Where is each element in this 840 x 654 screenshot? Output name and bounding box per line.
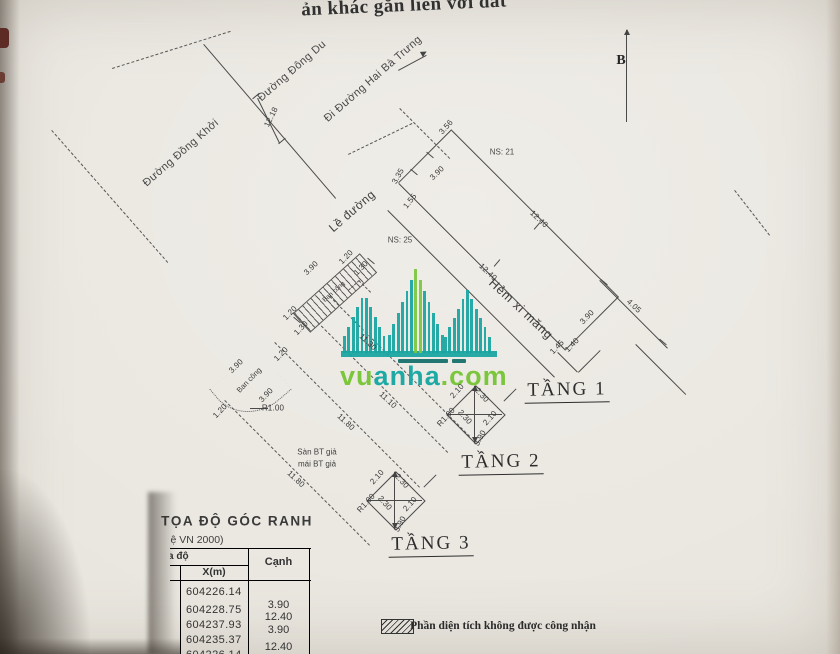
watermark-letter: u (356, 361, 374, 391)
table-canh-value: 3.90 (248, 624, 309, 636)
scan-mark (0, 28, 9, 48)
drawing-line (599, 280, 668, 349)
dim-balcony-1-20-a: 1.20 (272, 345, 290, 363)
dimension-tick (494, 259, 501, 267)
dim-3-56: 3.56 (437, 118, 455, 136)
watermark-letter: n (390, 361, 408, 391)
street-label-hai-ba-trung: Đi Đường Hai Bà Trưng (322, 33, 424, 124)
floor-label-2: TẦNG 2 (458, 450, 543, 475)
watermark-skyline-bar (466, 290, 469, 353)
legend-hatch-swatch (381, 619, 414, 634)
watermark-skyline-bar (475, 309, 478, 353)
drawing-line (635, 344, 686, 395)
dim-roof-3-90: 3.90 (302, 259, 320, 277)
table-canh-value: 12.40 (248, 611, 309, 623)
watermark-skyline-bar (388, 335, 391, 353)
house-code-21: NS: 21 (490, 148, 514, 157)
table-border (170, 580, 311, 581)
dim-rear-3-90: 3.90 (578, 308, 596, 326)
table-header-toado: a độ (170, 551, 189, 562)
arrow-head (420, 49, 428, 57)
north-label: B (616, 53, 625, 69)
watermark-text: vuanha.com (340, 361, 508, 392)
watermark-letter: . (441, 361, 450, 391)
watermark-skyline-bar (378, 327, 381, 353)
dim-front-3-90: 3.90 (428, 164, 446, 182)
floor-label-1: TẦNG 1 (524, 378, 609, 403)
street-label-dong-du: Đường Đông Du (255, 38, 328, 104)
watermark-skyline-bar (406, 291, 409, 353)
table-title: TỌA ĐỘ GÓC RANH (161, 514, 313, 529)
watermark-letter: h (407, 361, 425, 391)
watermark-skyline-bar (488, 337, 491, 353)
watermark-skyline-bar (356, 307, 359, 353)
floor-label-3: TẦNG 3 (388, 532, 473, 557)
alley-label: Hẻm xi măng (486, 276, 556, 342)
watermark-skyline-bar (423, 291, 426, 353)
watermark-skyline-bar (419, 280, 422, 353)
dimension-tick (278, 138, 286, 145)
scanned-survey-drawing: vuanha.com a độ X(m) Cạnh 604226.1460422… (0, 0, 840, 654)
dim-4-05: 4.05 (625, 297, 643, 315)
table-canh-value: 3.90 (248, 599, 309, 611)
table-border (180, 565, 181, 654)
note-san-bt-gia: Sàn BT giả (297, 448, 336, 457)
table-subtitle: ệ VN 2000) (170, 534, 223, 546)
watermark-skyline-bar (462, 299, 465, 353)
street-label-dong-khoi: Đường Đồng Khởi (141, 117, 222, 189)
dim-1-40: 1.40 (563, 336, 581, 354)
drawing-line (557, 352, 578, 373)
drawing-line (112, 31, 230, 69)
scan-shadow-right (826, 0, 840, 654)
watermark-skyline-bar (457, 309, 460, 353)
dim-balcony-r1-00: R1.00 (262, 404, 284, 413)
watermark-skyline-bar (428, 302, 431, 353)
watermark-skyline-bar (347, 327, 350, 353)
dimension-tick (410, 169, 418, 176)
drawing-line (734, 190, 770, 236)
watermark-letter: a (374, 361, 390, 391)
watermark-skyline-bar (479, 318, 482, 353)
table-canh-value: 12.40 (248, 641, 309, 653)
drawing-line (348, 123, 412, 155)
sidewalk-label: Lề đường (326, 187, 378, 235)
dimension-tick (429, 474, 436, 481)
coordinate-table: a độ X(m) Cạnh 604226.14604228.75604237.… (170, 548, 311, 654)
watermark-skyline-bar (352, 317, 355, 353)
watermark-letter: v (340, 361, 356, 391)
scan-shadow-left (0, 0, 20, 654)
watermark-skyline-bar (444, 337, 447, 353)
drawing-line (398, 129, 452, 183)
dimension-tick (509, 388, 516, 395)
watermark-skyline-bar (453, 318, 456, 353)
scan-mark (0, 72, 5, 83)
watermark-skyline-bar (414, 269, 417, 353)
drawing-line (51, 130, 168, 263)
watermark-skyline-bar (410, 280, 413, 353)
table-x-value: 604235.37 (186, 634, 242, 646)
watermark-letter: m (483, 361, 508, 391)
arrow-head (624, 29, 630, 35)
watermark-skyline-bar (484, 327, 487, 353)
table-x-value: 604226.14 (186, 586, 242, 598)
watermark-skyline-bar (470, 299, 473, 353)
dim-side-12-40-a: 12.40 (528, 209, 550, 230)
drawing-line (626, 30, 627, 122)
doc-title-fragment: ản khác gắn liền với đất (301, 0, 507, 21)
scan-shadow-bottom-left (0, 470, 90, 654)
watermark-skyline-bar (436, 324, 439, 353)
dim-street-12-18: 12.18 (262, 106, 280, 129)
watermark-skyline-bar (397, 313, 400, 353)
dim-balcony-1-20-b: 1.20 (211, 402, 229, 420)
watermark-skyline-bar (401, 302, 404, 353)
watermark-skyline-bar (432, 313, 435, 353)
table-header-canh: Cạnh (248, 556, 309, 568)
table-x-value: 604226.14 (186, 649, 242, 654)
watermark-letter: a (425, 361, 441, 391)
legend-text: Phần diện tích không được công nhận (410, 620, 596, 632)
table-x-value: 604228.75 (186, 604, 242, 616)
dimension-tick (426, 152, 434, 159)
note-mai-bt-gia: mái BT giả (298, 460, 336, 469)
scan-shadow-bottom (0, 638, 180, 654)
table-x-value: 604237.93 (186, 619, 242, 631)
watermark-skyline-bar (383, 336, 386, 353)
table-border (309, 548, 310, 654)
table-border (170, 548, 311, 549)
watermark-skyline-bar (361, 298, 364, 353)
watermark-skyline-bar (448, 327, 451, 353)
watermark-skyline-bar (343, 336, 346, 353)
dim-roof-1-30-b: 1.30 (292, 319, 310, 337)
table-header-xm: X(m) (180, 566, 248, 578)
house-code-25: NS: 25 (388, 236, 412, 245)
watermark-skyline-bar (392, 324, 395, 353)
drawing-line (578, 350, 601, 373)
